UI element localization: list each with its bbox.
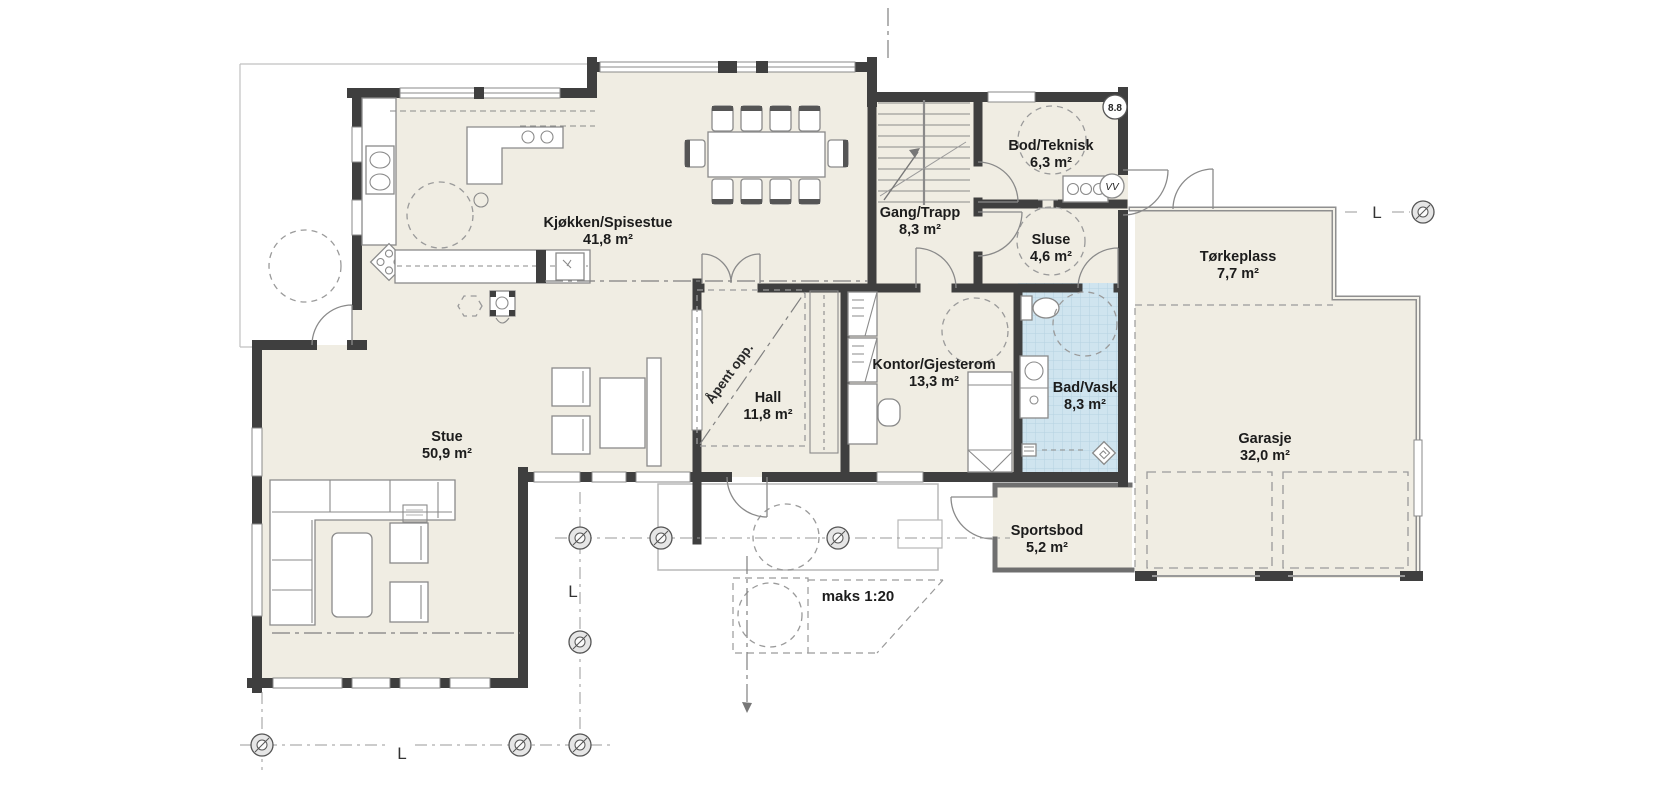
grid-marker	[1412, 201, 1434, 223]
label-stue-area: 50,9 m²	[422, 446, 472, 462]
desk	[848, 384, 877, 444]
label-hall-name: Hall	[755, 390, 782, 406]
sideboard	[647, 358, 661, 466]
grid-marker	[827, 527, 849, 549]
grid-marker	[509, 734, 531, 756]
coffee-table	[332, 533, 372, 617]
label-garasje-name: Garasje	[1238, 431, 1291, 447]
armchair	[552, 416, 590, 454]
section-arrow	[742, 702, 752, 713]
label-garasje-area: 32,0 m²	[1240, 448, 1290, 464]
kitchen-exterior-door	[312, 305, 352, 345]
bed	[968, 372, 1012, 472]
label-gang-area: 8,3 m²	[899, 222, 941, 238]
label-bad-name: Bad/Vask	[1053, 380, 1118, 396]
armchair	[390, 582, 428, 622]
floor-plan-page: Kjøkken/Spisestue 41,8 m² Bod/Teknisk 6,…	[0, 0, 1670, 800]
label-stue-name: Stue	[431, 429, 462, 445]
axis-label-bottom: L	[397, 744, 406, 763]
shelf	[848, 292, 877, 336]
porch-step	[898, 520, 942, 548]
floor-drain	[1022, 444, 1036, 456]
label-bad-area: 8,3 m²	[1064, 397, 1106, 413]
label-kjokken-area: 41,8 m²	[583, 232, 633, 248]
label-kjokken-name: Kjøkken/Spisestue	[544, 215, 673, 231]
garage-window	[1414, 440, 1422, 516]
dining-table	[708, 132, 825, 177]
sportsbod-door	[951, 497, 993, 539]
water-heater-label: VV	[1105, 182, 1120, 193]
grid-marker	[569, 631, 591, 653]
label-torkeplass-area: 7,7 m²	[1217, 266, 1259, 282]
label-sluse-area: 4,6 m²	[1030, 249, 1072, 265]
label-bod-name: Bod/Teknisk	[1008, 138, 1094, 154]
section-marker-label: 8.8	[1108, 103, 1122, 114]
kitchen-sink-unit	[366, 146, 394, 194]
toilet-bowl	[1033, 298, 1059, 318]
axis-label-mid: L	[568, 582, 577, 601]
vanity	[1020, 356, 1048, 418]
label-sportsbod-name: Sportsbod	[1011, 523, 1084, 539]
grid-marker	[569, 734, 591, 756]
label-sportsbod-area: 5,2 m²	[1026, 540, 1068, 556]
drying-area-gate	[1173, 169, 1213, 209]
grid-marker	[251, 734, 273, 756]
desk-chair	[878, 399, 900, 426]
armchair	[552, 368, 590, 406]
label-sluse-name: Sluse	[1032, 232, 1071, 248]
label-bod-area: 6,3 m²	[1030, 155, 1072, 171]
label-kontor-name: Kontor/Gjesterom	[872, 357, 995, 373]
label-kontor-area: 13,3 m²	[909, 374, 959, 390]
axis-label-right: L	[1372, 203, 1381, 222]
grid-marker	[650, 527, 672, 549]
toilet-tank	[1021, 296, 1032, 320]
label-torkeplass-name: Tørkeplass	[1200, 249, 1277, 265]
armchair	[390, 523, 428, 563]
floor-plan-drawing: Kjøkken/Spisestue 41,8 m² Bod/Teknisk 6,…	[0, 0, 1670, 800]
ramp-slope-label: maks 1:20	[822, 588, 895, 605]
label-gang-name: Gang/Trapp	[880, 205, 961, 221]
grid-marker	[569, 527, 591, 549]
coffee-table	[600, 378, 645, 448]
label-hall-area: 11,8 m²	[743, 407, 792, 423]
